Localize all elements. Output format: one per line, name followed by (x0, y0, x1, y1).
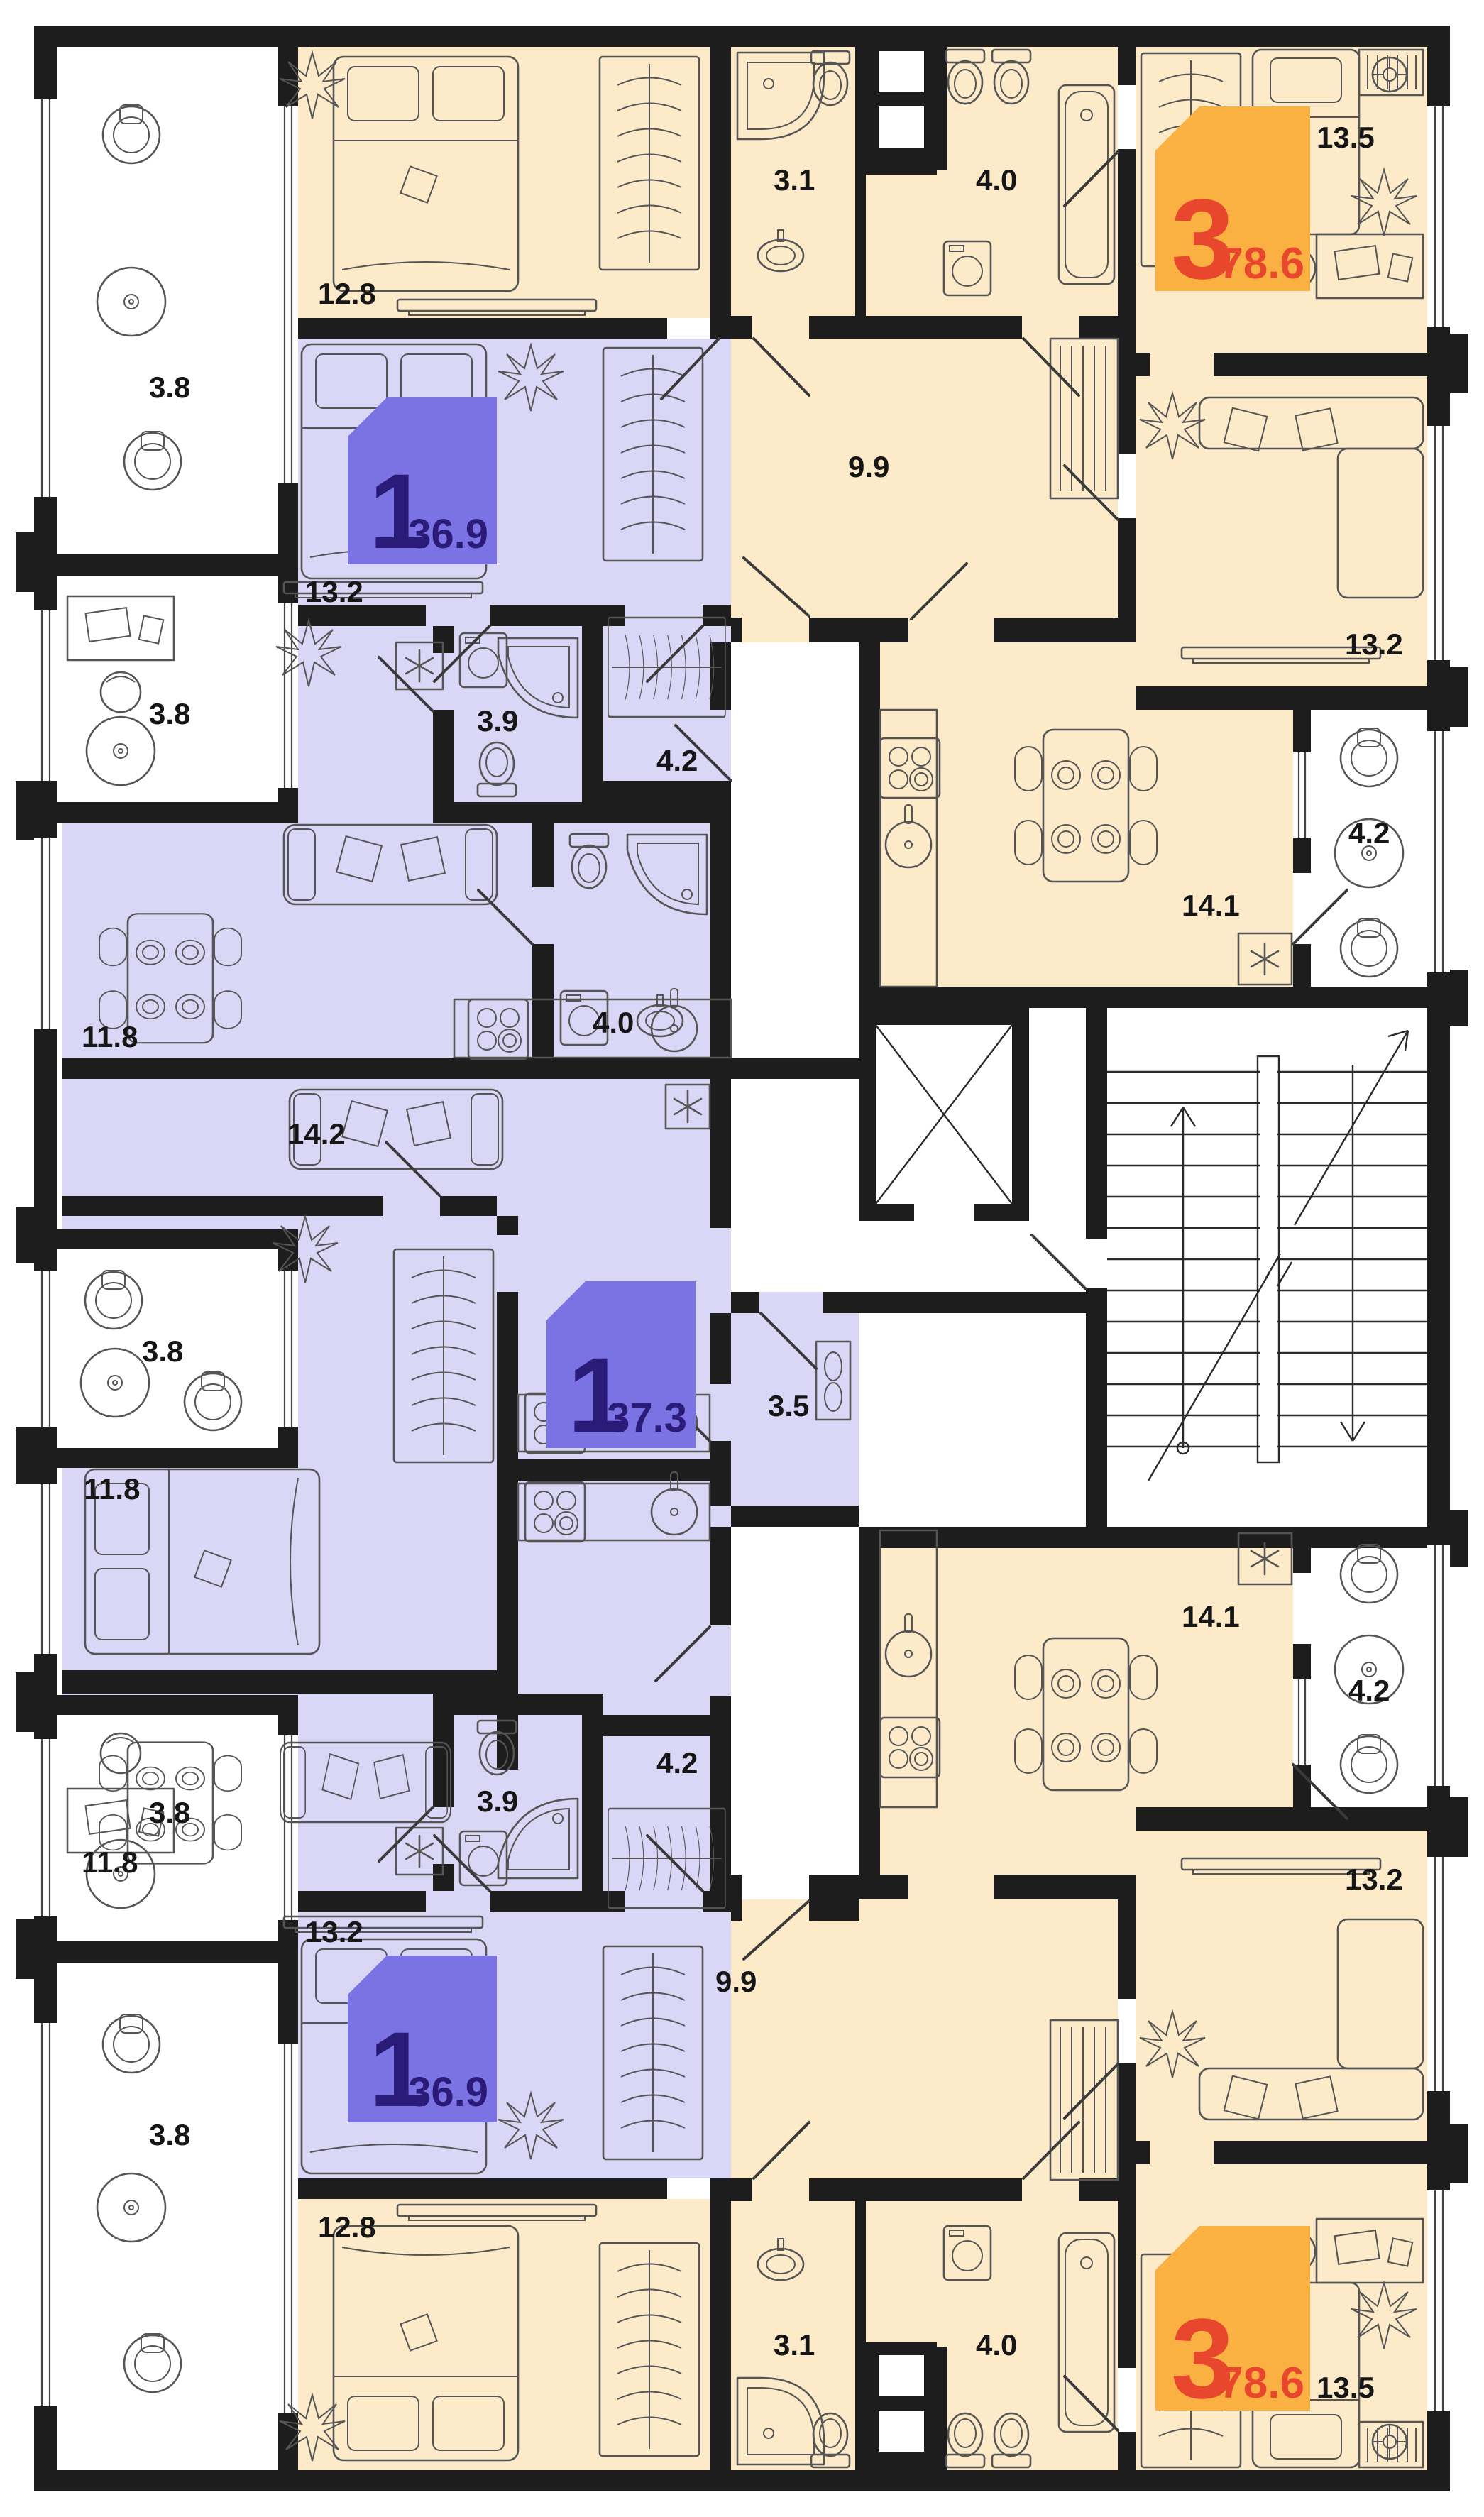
area-bath-3-9-upper: 3.9 (477, 704, 518, 737)
badge-area: 78.6 (1219, 2359, 1304, 2408)
badge-three-room-top[interactable]: 3 78.6 (1155, 106, 1310, 302)
area-balcony-5: 3.8 (149, 2118, 190, 2151)
area-hall-9-9-top: 9.9 (848, 450, 889, 483)
stair-vestibule (1029, 1008, 1086, 1527)
area-living-11-8-upper: 11.8 (82, 1020, 138, 1053)
area-room-13-5-top: 13.5 (1317, 121, 1375, 154)
area-bedroom-purple-lower: 13.2 (305, 1915, 363, 1948)
area-balcony-2: 3.8 (149, 697, 190, 730)
area-bedroom-11-8-middle: 11.8 (84, 1472, 140, 1506)
balcony-right-bottom (1311, 1530, 1427, 1807)
balcony-1 (57, 47, 278, 554)
balcony-2 (57, 576, 278, 802)
corridor-top (731, 642, 859, 1228)
badge-one-room-lower[interactable]: 1 36.9 (348, 1956, 497, 2129)
badge-three-room-bottom[interactable]: 3 78.6 (1155, 2226, 1310, 2422)
area-bedroom-orange-top: 12.8 (318, 277, 376, 310)
area-hall-3-5-middle: 3.5 (768, 1389, 809, 1422)
window-strip (34, 99, 57, 497)
area-kitchen-top: 14.1 (1182, 889, 1240, 922)
area-dressing-upper: 4.2 (656, 744, 698, 777)
badge-area: 36.9 (408, 511, 488, 557)
area-balcony-4: 3.8 (149, 1796, 190, 1829)
badge-one-room-upper[interactable]: 1 36.9 (348, 397, 497, 571)
stairwell (1107, 1008, 1427, 1527)
area-bedroom-orange-bottom: 12.8 (318, 2210, 376, 2244)
area-dressing-lower: 4.2 (656, 1746, 698, 1780)
floor-plan: 3.8 12.8 3.1 4.0 9.9 13.5 13.2 14.1 4.2 … (0, 0, 1484, 2517)
badge-area: 37.3 (607, 1395, 687, 1441)
area-balcony-right-bottom: 4.2 (1348, 1674, 1390, 1707)
area-living-14-2-middle: 14.2 (287, 1117, 346, 1151)
balcony-5 (57, 1963, 278, 2470)
area-living-11-8-lower: 11.8 (82, 1846, 138, 1879)
area-bath-3-1-bottom: 3.1 (774, 2328, 815, 2362)
area-balcony-3: 3.8 (142, 1334, 183, 1368)
elevator-lobby (859, 1221, 1029, 1527)
area-balcony-1: 3.8 (149, 371, 190, 404)
kitchen-link-bottom (880, 1807, 1136, 1875)
badge-one-room-middle[interactable]: 1 37.3 (546, 1281, 696, 1454)
area-bath-4-0-middle: 4.0 (593, 1006, 634, 1039)
area-bath-3-1-top: 3.1 (774, 163, 815, 197)
area-bedroom-purple-upper: 13.2 (305, 575, 363, 608)
area-bath-3-9-lower: 3.9 (477, 1784, 518, 1818)
area-kitchen-bottom: 14.1 (1182, 1600, 1240, 1633)
badge-area: 36.9 (408, 2069, 488, 2115)
badge-area: 78.6 (1219, 239, 1304, 288)
area-bath-4-0-bottom: 4.0 (976, 2328, 1017, 2362)
area-room-13-2-top: 13.2 (1345, 627, 1403, 661)
apartment-lower-purple-upper-arm (518, 1481, 731, 1694)
area-hall-9-9-bottom: 9.9 (715, 1965, 757, 1998)
kitchen-14-1-bottom (880, 1530, 1293, 1807)
corridor-bottom (731, 1527, 859, 1899)
kitchen-link-top (880, 642, 1136, 710)
area-room-13-2-bottom: 13.2 (1345, 1863, 1403, 1896)
area-balcony-right-top: 4.2 (1348, 816, 1390, 850)
kitchen-14-1-top (880, 710, 1293, 987)
area-room-13-5-bottom: 13.5 (1317, 2371, 1375, 2404)
area-bath-4-0-top: 4.0 (976, 163, 1017, 197)
